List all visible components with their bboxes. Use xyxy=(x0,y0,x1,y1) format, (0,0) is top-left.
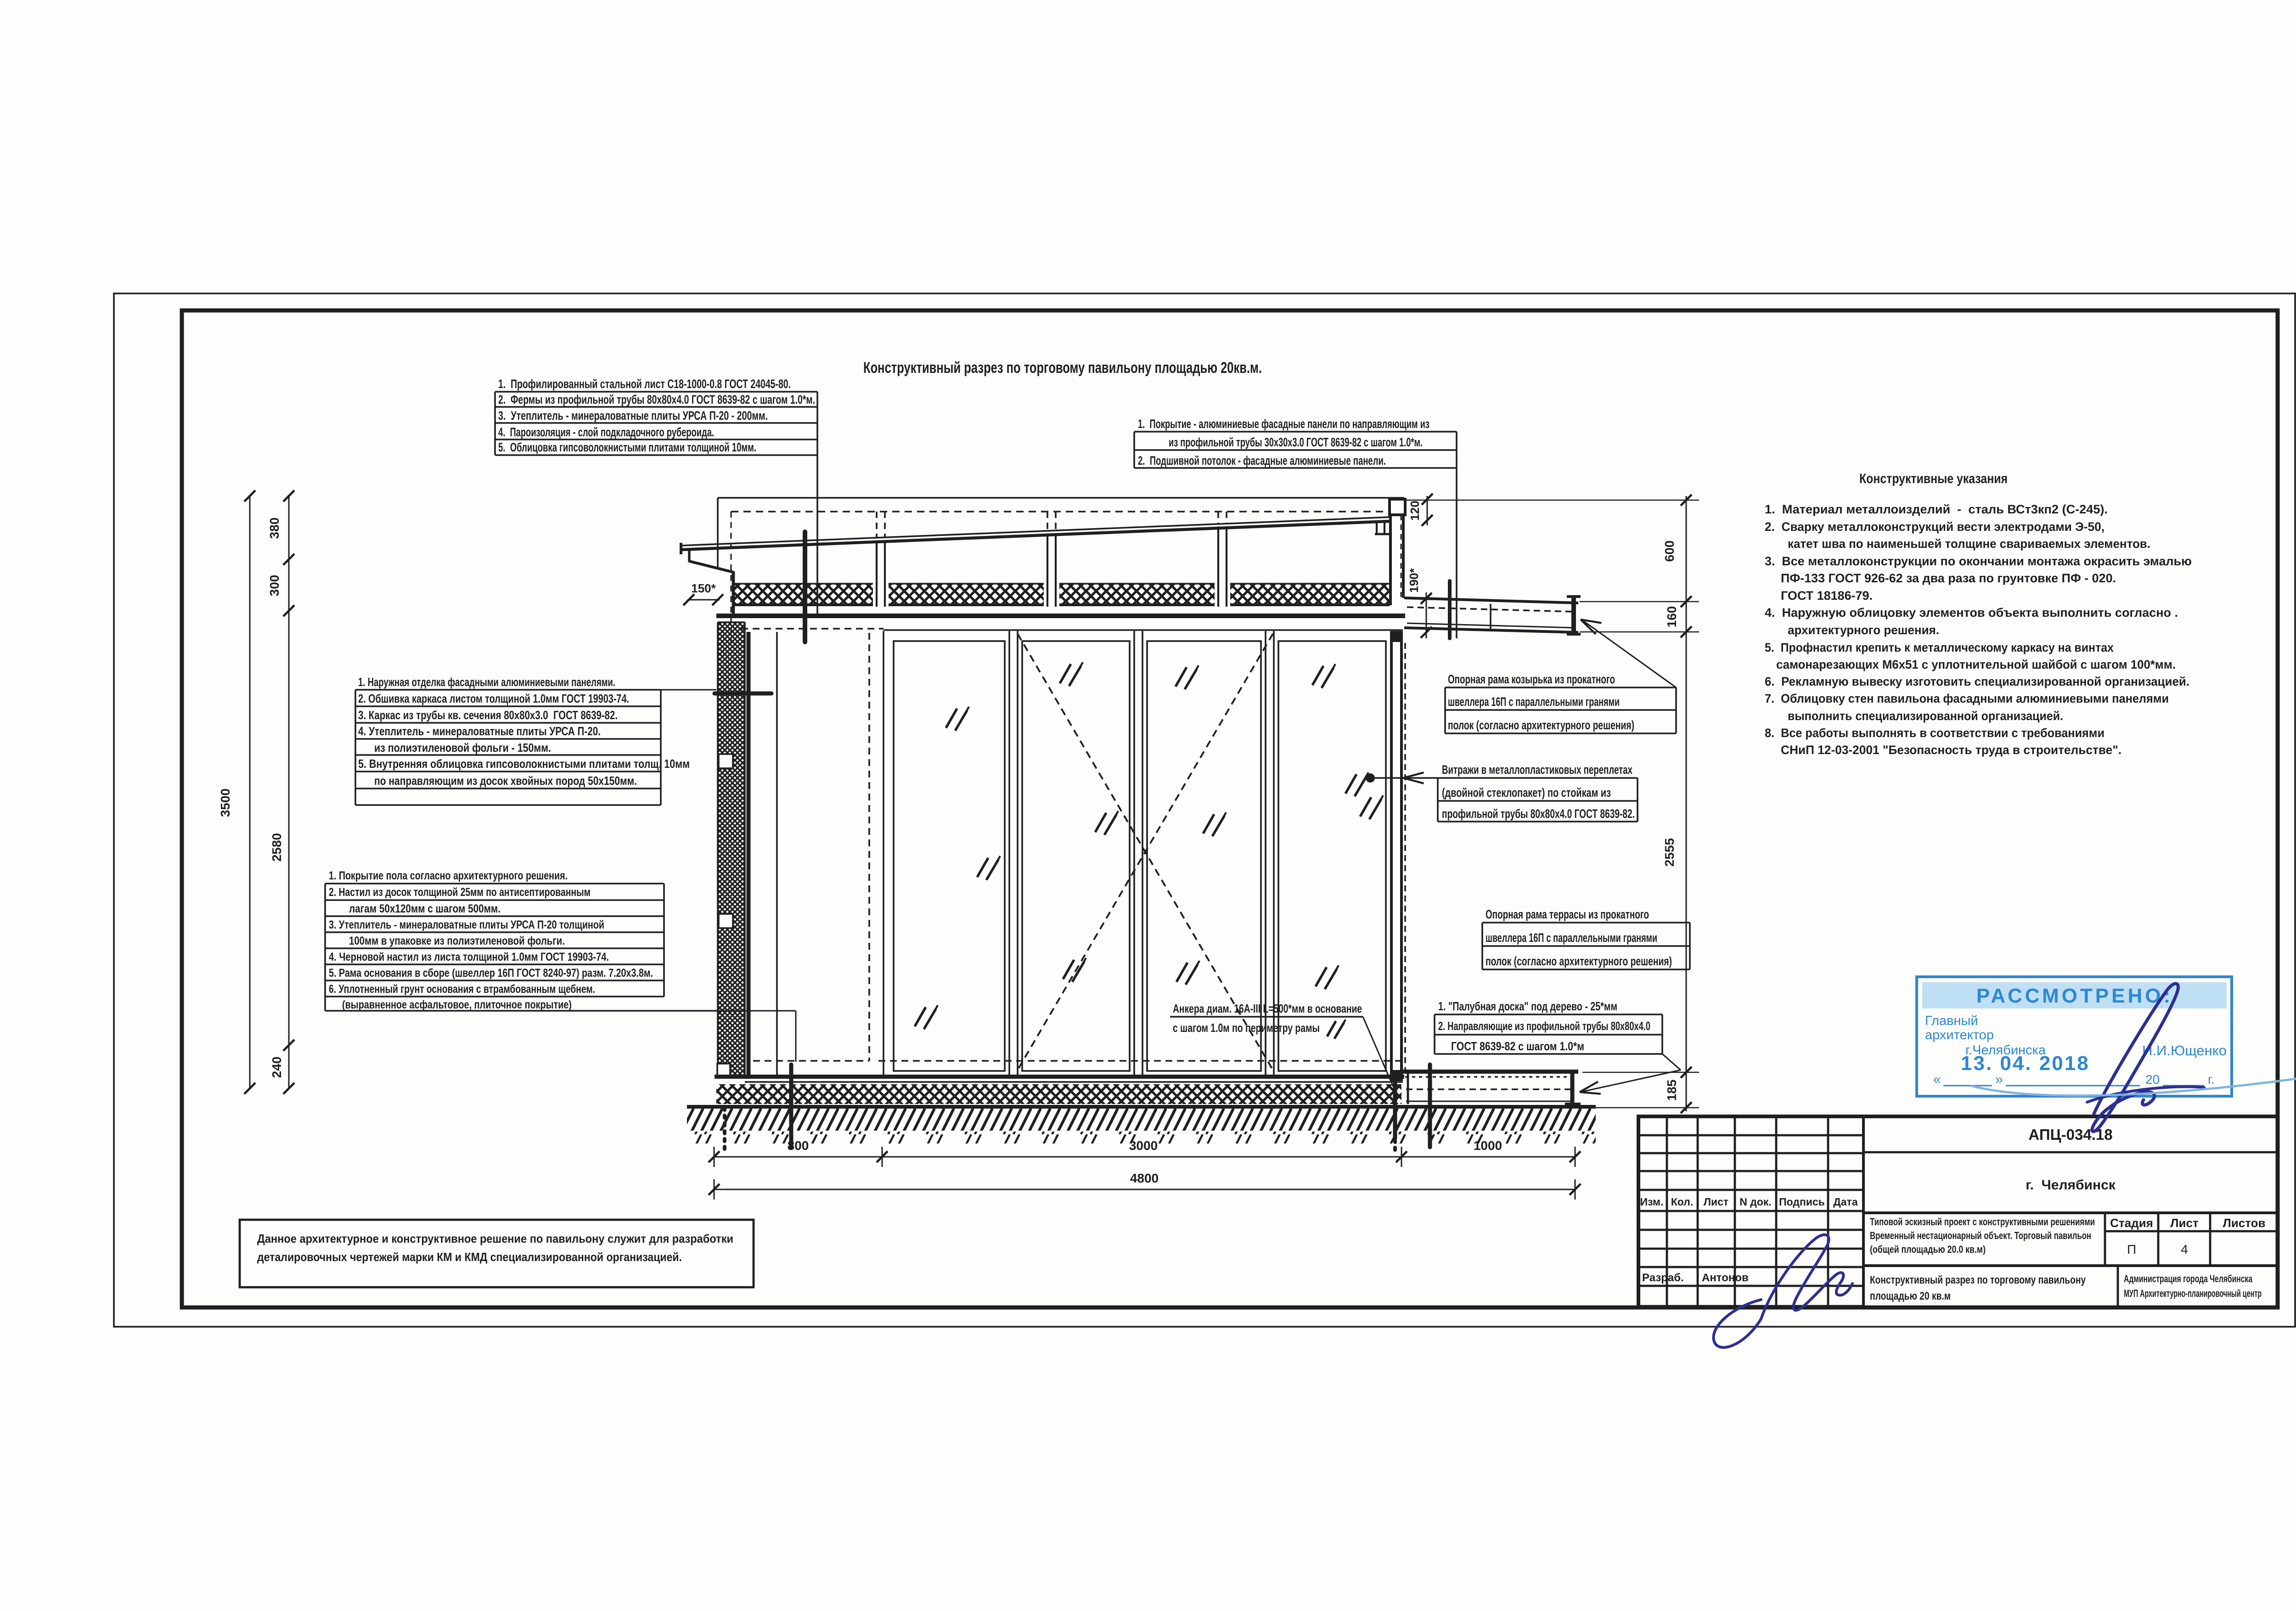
svg-text:Дата: Дата xyxy=(1833,1196,1857,1208)
svg-text:6. Уплотненный грунт основания: 6. Уплотненный грунт основания с втрамбо… xyxy=(329,983,595,996)
svg-text:РАССМОТРЕНО:: РАССМОТРЕНО: xyxy=(1976,985,2173,1007)
svg-text:Типовой эскизный проект с конс: Типовой эскизный проект с конструктивным… xyxy=(1870,1216,2095,1228)
svg-text:Данное архитектурное и констру: Данное архитектурное и конструктивное ре… xyxy=(257,1232,733,1245)
svg-text:1. Покрытие пола согласно архи: 1. Покрытие пола согласно архитектурного… xyxy=(329,869,568,882)
svg-text:3. Утеплитель - минераловатные: 3. Утеплитель - минераловатные плиты УРС… xyxy=(329,918,604,931)
svg-text:7. Облицовку стен павильона ф: 7. Облицовку стен павильона фасадными ал… xyxy=(1765,692,2169,705)
svg-text:ПФ-133 ГОСТ 926-62 за два раза: ПФ-133 ГОСТ 926-62 за два раза по грунто… xyxy=(1781,571,2116,585)
svg-text:2. Подшивной потолок - фасадн: 2. Подшивной потолок - фасадные алюминие… xyxy=(1138,454,1386,468)
svg-text:1. "Палубная доска" под дерево: 1. "Палубная доска" под дерево - 25*мм xyxy=(1438,999,1617,1013)
svg-text:(выравненное асфальтовое, плит: (выравненное асфальтовое, плиточное покр… xyxy=(342,998,572,1011)
svg-text:Временный нестационарный объек: Временный нестационарный объект. Торговы… xyxy=(1870,1230,2091,1241)
svg-text:»: » xyxy=(1995,1072,2003,1087)
svg-text:4800: 4800 xyxy=(1130,1171,1159,1185)
svg-text:Анкера диам. 16А-III L=500*мм: Анкера диам. 16А-III L=500*мм в основани… xyxy=(1173,1002,1362,1015)
svg-text:катет шва по наименьшей толщин: катет шва по наименьшей толщине сваривае… xyxy=(1788,537,2150,551)
svg-text:380: 380 xyxy=(267,518,281,539)
svg-text:3. Каркас из трубы кв. сечения: 3. Каркас из трубы кв. сечения 80х80х3.0… xyxy=(358,708,618,722)
svg-text:4. Пароизоляция - слой подкла: 4. Пароизоляция - слой подкладочного руб… xyxy=(498,425,714,439)
svg-text:самонарезающих М6х51 с уплотни: самонарезающих М6х51 с уплотнительной ша… xyxy=(1776,658,2176,671)
svg-text:3. Утеплитель - минераловатны: 3. Утеплитель - минераловатные плиты УРС… xyxy=(498,409,768,422)
svg-text:185: 185 xyxy=(1665,1080,1679,1101)
svg-text:160: 160 xyxy=(1665,606,1679,628)
svg-text:2580: 2580 xyxy=(270,833,284,862)
svg-text:6. Рекламную вывеску изготови: 6. Рекламную вывеску изготовить специали… xyxy=(1765,675,2189,688)
svg-text:швеллера 16П с параллельными г: швеллера 16П с параллельными гранями xyxy=(1448,695,1620,709)
svg-text:1. Профилированный стальной л: 1. Профилированный стальной лист С18-100… xyxy=(498,377,791,391)
svg-text:лагам 50х120мм с шагом 500мм.: лагам 50х120мм с шагом 500мм. xyxy=(349,902,501,915)
svg-text:Витражи в металлопластиковых п: Витражи в металлопластиковых переплетах xyxy=(1442,763,1632,777)
svg-text:1. Наружная отделка фасадными: 1. Наружная отделка фасадными алюминиевы… xyxy=(358,675,615,689)
svg-text:5. Профнастил крепить к метал: 5. Профнастил крепить к металлическому к… xyxy=(1765,641,2114,654)
svg-text:Лист: Лист xyxy=(2170,1216,2199,1230)
svg-text:полок (согласно архитектурного: полок (согласно архитектурного решения) xyxy=(1448,718,1634,732)
svg-text:из полиэтиленовой фольги - 150: из полиэтиленовой фольги - 150мм. xyxy=(374,741,551,755)
svg-text:выполнить специализированной о: выполнить специализированной организацие… xyxy=(1788,709,2063,723)
svg-text:г.: г. xyxy=(2208,1072,2215,1087)
svg-text:Опорная рама террасы из прокат: Опорная рама террасы из прокатного xyxy=(1486,907,1649,921)
svg-text:20: 20 xyxy=(2145,1072,2160,1087)
svg-text:архитектурного решения.: архитектурного решения. xyxy=(1788,623,1939,637)
svg-text:4: 4 xyxy=(2181,1242,2188,1256)
svg-text:Разраб.: Разраб. xyxy=(1642,1272,1684,1284)
svg-text:Конструктивный разрез по торго: Конструктивный разрез по торговому павил… xyxy=(863,359,1262,377)
svg-text:г. Челябинск: г. Челябинск xyxy=(2026,1177,2116,1193)
svg-text:4. Утеплитель - минераловатные: 4. Утеплитель - минераловатные плиты УРС… xyxy=(358,724,601,738)
svg-text:П: П xyxy=(2127,1242,2136,1256)
svg-text:(двойной стеклопакет) по стойк: (двойной стеклопакет) по стойкам из xyxy=(1442,786,1611,800)
svg-text:100мм в упаковке из полиэтилен: 100мм в упаковке из полиэтиленовой фольг… xyxy=(349,935,565,947)
svg-text:2. Направляющие из профильной: 2. Направляющие из профильной трубы 80х8… xyxy=(1438,1019,1650,1033)
svg-text:1000: 1000 xyxy=(1474,1138,1502,1153)
svg-text:2. Фермы из профильной трубы: 2. Фермы из профильной трубы 80х80х4.0 Г… xyxy=(498,393,815,406)
svg-text:2. Сварку металлоконструкций: 2. Сварку металлоконструкций вести элект… xyxy=(1765,520,2105,534)
svg-text:Главный: Главный xyxy=(1925,1014,1978,1028)
svg-text:2555: 2555 xyxy=(1662,838,1677,867)
svg-text:Антонов: Антонов xyxy=(1702,1272,1749,1284)
svg-text:Подпись: Подпись xyxy=(1779,1196,1825,1208)
svg-text:швеллера 16П с параллельными г: швеллера 16П с параллельными гранями xyxy=(1486,931,1657,945)
svg-text:СНиП 12-03-2001 "Безопасность: СНиП 12-03-2001 "Безопасность труда в ст… xyxy=(1781,743,2122,757)
svg-text:5. Облицовка гипсоволокнистым: 5. Облицовка гипсоволокнистыми плитами т… xyxy=(498,440,756,454)
svg-text:13. 04. 2018: 13. 04. 2018 xyxy=(1961,1052,2090,1075)
svg-text:Изм.: Изм. xyxy=(1640,1196,1664,1208)
svg-text:Стадия: Стадия xyxy=(2110,1216,2153,1230)
svg-text:5. Внутренняя облицовка гипсов: 5. Внутренняя облицовка гипсоволокнистым… xyxy=(358,757,690,771)
svg-text:1. Покрытие - алюминиевые фас: 1. Покрытие - алюминиевые фасадные панел… xyxy=(1138,417,1429,431)
svg-text:4. Черновой настил из листа то: 4. Черновой настил из листа толщиной 1.0… xyxy=(329,951,609,963)
svg-text:8. Все работы выполнять в соо: 8. Все работы выполнять в соответствии с… xyxy=(1765,726,2105,740)
svg-text:Администрация города Челябинск: Администрация города Челябинска xyxy=(2124,1273,2253,1284)
svg-text:300: 300 xyxy=(267,575,281,597)
svg-text:800: 800 xyxy=(788,1138,809,1153)
svg-text:240: 240 xyxy=(270,1057,284,1078)
svg-text:3500: 3500 xyxy=(218,789,232,817)
svg-text:2. Настил из досок толщиной 25: 2. Настил из досок толщиной 25мм по анти… xyxy=(329,886,591,899)
svg-text:150*: 150* xyxy=(691,581,716,595)
svg-text:профильной трубы 80х80х4.0 ГОС: профильной трубы 80х80х4.0 ГОСТ 8639-82. xyxy=(1442,807,1635,821)
svg-text:«: « xyxy=(1933,1072,1941,1087)
svg-text:ГОСТ 8639-82 с шагом 1.0*м: ГОСТ 8639-82 с шагом 1.0*м xyxy=(1451,1039,1584,1053)
svg-text:Конструктивные указания: Конструктивные указания xyxy=(1859,471,2008,486)
svg-text:Лист: Лист xyxy=(1704,1196,1728,1208)
svg-text:Конструктивный разрез по торго: Конструктивный разрез по торговому павил… xyxy=(1870,1274,2086,1286)
svg-text:3000: 3000 xyxy=(1129,1138,1158,1153)
svg-text:по направляющим из досок хвойн: по направляющим из досок хвойных пород 5… xyxy=(374,774,637,788)
svg-text:(общей площадью 20.0 кв.м): (общей площадью 20.0 кв.м) xyxy=(1870,1244,1986,1255)
svg-text:площадью 20 кв.м: площадью 20 кв.м xyxy=(1870,1290,1951,1302)
svg-text:3. Все металлоконструкции по: 3. Все металлоконструкции по окончании м… xyxy=(1765,554,2192,568)
svg-text:120: 120 xyxy=(1408,501,1422,520)
svg-text:ГОСТ 18186-79.: ГОСТ 18186-79. xyxy=(1781,589,1873,603)
svg-text:4. Наружную облицовку элемент: 4. Наружную облицовку элементов объекта … xyxy=(1765,606,2178,620)
svg-text:Н.И.Ющенко: Н.И.Ющенко xyxy=(2142,1042,2227,1059)
svg-text:Опорная рама козырька из прока: Опорная рама козырька из прокатного xyxy=(1448,672,1615,686)
svg-text:5. Рама основания в сборе (шве: 5. Рама основания в сборе (швеллер 16П Г… xyxy=(329,967,653,980)
svg-text:архитектор: архитектор xyxy=(1925,1028,1994,1042)
svg-text:МУП Архитектурно-планировочный: МУП Архитектурно-планировочный центр xyxy=(2124,1288,2262,1299)
svg-text:деталировочных чертежей марки: деталировочных чертежей марки КМ и КМД с… xyxy=(257,1250,682,1264)
svg-text:190*: 190* xyxy=(1407,568,1421,592)
svg-text:N док.: N док. xyxy=(1739,1196,1772,1208)
svg-text:600: 600 xyxy=(1662,541,1677,562)
svg-text:с шагом 1.0м по периметру рамы: с шагом 1.0м по периметру рамы xyxy=(1173,1021,1320,1035)
svg-text:Листов: Листов xyxy=(2223,1216,2266,1230)
svg-text:Кол.: Кол. xyxy=(1671,1196,1694,1208)
svg-text:1. Материал металлоизделий -: 1. Материал металлоизделий - сталь ВСт3к… xyxy=(1765,502,2108,516)
svg-text:полок (согласно архитектурного: полок (согласно архитектурного решения) xyxy=(1486,954,1672,968)
svg-text:2. Обшивка каркаса листом толщ: 2. Обшивка каркаса листом толщиной 1.0мм… xyxy=(358,692,629,705)
svg-text:из профильной трубы 30х30х3.0: из профильной трубы 30х30х3.0 ГОСТ 8639-… xyxy=(1169,435,1423,449)
